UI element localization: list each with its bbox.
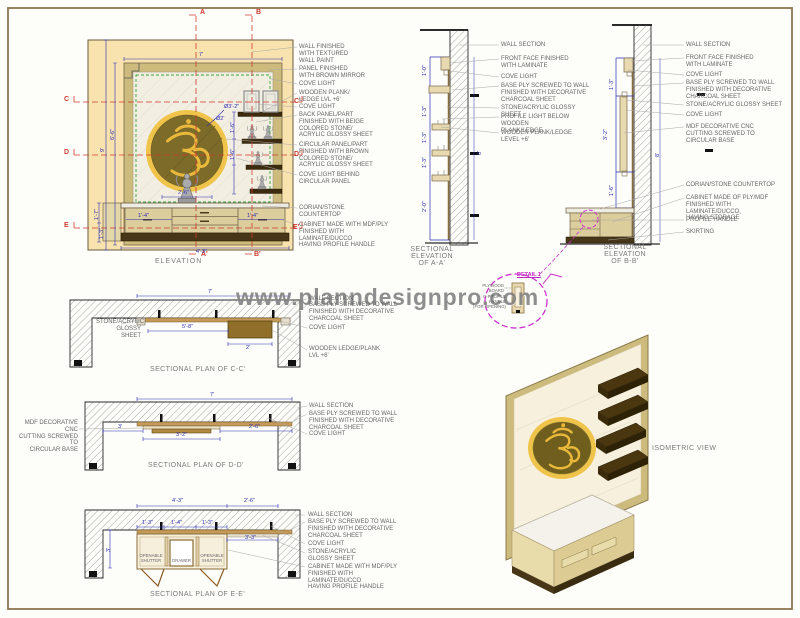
- elevation-label-back-panel: BACK PANEL/PART FINISHED WITH BEIGE COLO…: [299, 112, 394, 139]
- section-bb-label-front-face: FRONT FACE FINISHED WITH LAMINATE: [686, 55, 786, 69]
- plan-ee-shutter-left-label: OPENABLE SHUTTER: [138, 554, 164, 564]
- elevation-label-cove-light-1: COVE LIGHT: [299, 81, 394, 88]
- dim-text: 1'-4": [247, 213, 258, 219]
- title-section-bb: SECTIONAL ELEVATION OF B-B': [597, 244, 653, 265]
- title-detail-1: DETAIL 1: [517, 272, 541, 278]
- section-bb-label-cove-2: COVE LIGHT: [686, 112, 786, 119]
- elevation-label-mirror-panel: PANEL FINISHED WITH BROWN MIRROR: [299, 66, 394, 80]
- detail-label-handle: C-PROFILE HANDLE (FOR OPENING): [468, 295, 506, 310]
- dim-text: 3'-3": [245, 535, 256, 541]
- elevation-label-wooden-plank: WOODEN PLANK/ LEDGE LVL +6': [299, 90, 394, 104]
- plan-dd-label-cove: COVE LIGHT: [309, 431, 401, 438]
- title-plan-cc: SECTIONAL PLAN OF C-C': [150, 366, 246, 373]
- marker-c: C: [64, 96, 69, 103]
- dim-text: 1'-6": [230, 122, 236, 133]
- dim-text: 2': [246, 345, 250, 351]
- plan-cc-label-cove: COVE LIGHT: [309, 325, 401, 332]
- plan-ee-label-stone: STONE/ACRYLIC GLOSSY SHEET: [308, 549, 403, 563]
- dim-text: 8': [477, 151, 483, 155]
- section-aa-label-base-ply: BASE PLY SCREWED TO WALL FINISHED WITH D…: [501, 83, 596, 103]
- section-bb-label-mdf-cnc: MDF DECORATIVE CNC CUTTING SCREWED TO CI…: [686, 124, 786, 144]
- dim-text: 1'-3": [99, 228, 105, 239]
- dim-text: 1'-3": [609, 79, 615, 90]
- dim-text: 4'-3": [196, 249, 207, 255]
- section-aa-label-plank: WOODEN PLANK/LEDGE LEVEL +6': [501, 130, 596, 144]
- section-bb-label-handle: PROFILE HANDLE: [686, 217, 786, 224]
- plan-ee-label-base-ply: BASE PLY SCREWED TO WALL FINISHED WITH D…: [308, 519, 403, 539]
- section-aa-drawing: [420, 30, 499, 245]
- dim-text: 1'-3": [422, 132, 428, 143]
- dim-text: 3': [118, 424, 122, 430]
- dim-text: 7': [210, 392, 214, 398]
- elevation-label-circular-panel: CIRCULAR PANEL/PART FINISHED WITH BROWN …: [299, 142, 394, 169]
- title-plan-ee: SECTIONAL PLAN OF E-E': [150, 591, 245, 598]
- drawing-sheet: www.planndesignpro.com ELEVATION SECTION…: [0, 0, 800, 618]
- marker-e: E: [64, 222, 69, 229]
- dim-text: 9': [100, 148, 106, 152]
- elevation-label-cove-circular: COVE LIGHT BEHIND CIRCULAR PANEL: [299, 172, 394, 186]
- dim-text: 1'-7": [94, 209, 100, 220]
- dim-text: 2'-6": [244, 498, 255, 504]
- plan-dd-label-wall: WALL SECTION: [309, 403, 401, 410]
- elevation-label-wall-finish: WALL FINISHED WITH TEXTURED WALL PAINT: [299, 44, 394, 64]
- marker-d: D: [64, 149, 69, 156]
- section-aa-label-front-face: FRONT FACE FINISHED WITH LAMINATE: [501, 56, 596, 70]
- dim-text: 5'-8": [182, 324, 193, 330]
- section-aa-label-cove: COVE LIGHT: [501, 74, 596, 81]
- dim-text: 3': [106, 548, 112, 552]
- dim-text: 1'-4": [171, 520, 182, 526]
- dim-text: 1'-3": [142, 520, 153, 526]
- section-bb-label-stone: STONE/ACRYLIC GLOSSY SHEET: [686, 102, 786, 109]
- plan-ee-drawing: [85, 504, 305, 586]
- dim-text: 2'-0": [422, 201, 428, 212]
- plan-ee-label-cabinet: CABINET MADE WITH MDF/PLY FINISHED WITH …: [308, 564, 403, 591]
- plan-dd-drawing: [79, 397, 307, 470]
- plan-cc-label-ledge: WOODEN LEDGE/PLANK LVL +6': [309, 346, 401, 360]
- dim-text: Ø2': [216, 116, 224, 122]
- plan-ee-drawer-label: DRAWER: [169, 559, 194, 564]
- dim-text: 1'-0": [422, 65, 428, 76]
- plan-dd-label-mdf-cnc: MDF DECORATIVE CNC CUTTING SCREWED TO CI…: [16, 420, 78, 454]
- title-section-aa: SECTIONAL ELEVATION OF A-A': [404, 246, 460, 267]
- title-isometric: ISOMETRIC VIEW: [652, 445, 716, 452]
- elevation-drawing: [74, 15, 302, 254]
- section-bb-label-skirting: SKIRTING: [686, 229, 786, 236]
- marker-a: A: [200, 9, 205, 16]
- section-aa-label-wall: WALL SECTION: [501, 42, 596, 49]
- dim-text: 7': [208, 289, 212, 295]
- dim-text: 3'-2": [603, 129, 609, 140]
- dim-text: 6'-6": [110, 129, 116, 140]
- detail-label-plywood: PLYWOOD BOARD: [472, 284, 504, 294]
- dim-text: 2'-6": [249, 424, 260, 430]
- dim-text: Ø3'-2": [224, 104, 239, 110]
- section-bb-label-cove-1: COVE LIGHT: [686, 72, 786, 79]
- dim-text: 8': [655, 153, 661, 157]
- section-bb-label-base-ply: BASE PLY SCREWED TO WALL FINISHED WITH D…: [686, 80, 786, 100]
- marker-b: B: [256, 9, 261, 16]
- plan-cc-label-stone: STONE/ACRYLIC GLOSSY SHEET: [96, 319, 141, 339]
- dim-text: 1'-3": [202, 520, 213, 526]
- dim-text: 2'-6": [178, 190, 189, 196]
- dim-text: 1'-4": [138, 213, 149, 219]
- dim-text: 3'-2": [176, 432, 187, 438]
- dim-text: 1'-3": [422, 157, 428, 168]
- plan-ee-label-wall: WALL SECTION: [308, 512, 403, 519]
- elevation-label-cabinet: CABINET MADE WITH MDF/PLY FINISHED WITH …: [299, 222, 394, 249]
- title-plan-dd: SECTIONAL PLAN OF D-D': [148, 462, 244, 469]
- section-bb-label-countertop: CORIAN/STONE COUNTERTOP: [686, 182, 786, 189]
- section-bb-label-wall: WALL SECTION: [686, 42, 786, 49]
- plan-ee-shutter-right-label: OPENABLE SHUTTER: [199, 554, 225, 564]
- dim-text: 1'-6": [230, 149, 236, 160]
- marker-b1: B': [254, 251, 261, 258]
- plan-dd-label-base-ply: BASE PLY SCREWED TO WALL FINISHED WITH D…: [309, 411, 401, 431]
- isometric-drawing: [506, 335, 648, 594]
- dim-text: 7': [199, 52, 203, 58]
- dim-text: 1'-3": [422, 106, 428, 117]
- plan-ee-label-cove: COVE LIGHT: [308, 541, 403, 548]
- dim-text: 4'-3": [172, 498, 183, 504]
- plan-cc-label-base-ply: BASE PLY SCREWED TO WALL FINISHED WITH D…: [309, 302, 401, 322]
- title-elevation: ELEVATION: [155, 258, 202, 265]
- dim-text: 1'-6": [609, 185, 615, 196]
- elevation-label-countertop: CORIAN/STONE COUNTERTOP: [299, 205, 394, 219]
- elevation-label-cove-light-2: COVE LIGHT: [299, 104, 394, 111]
